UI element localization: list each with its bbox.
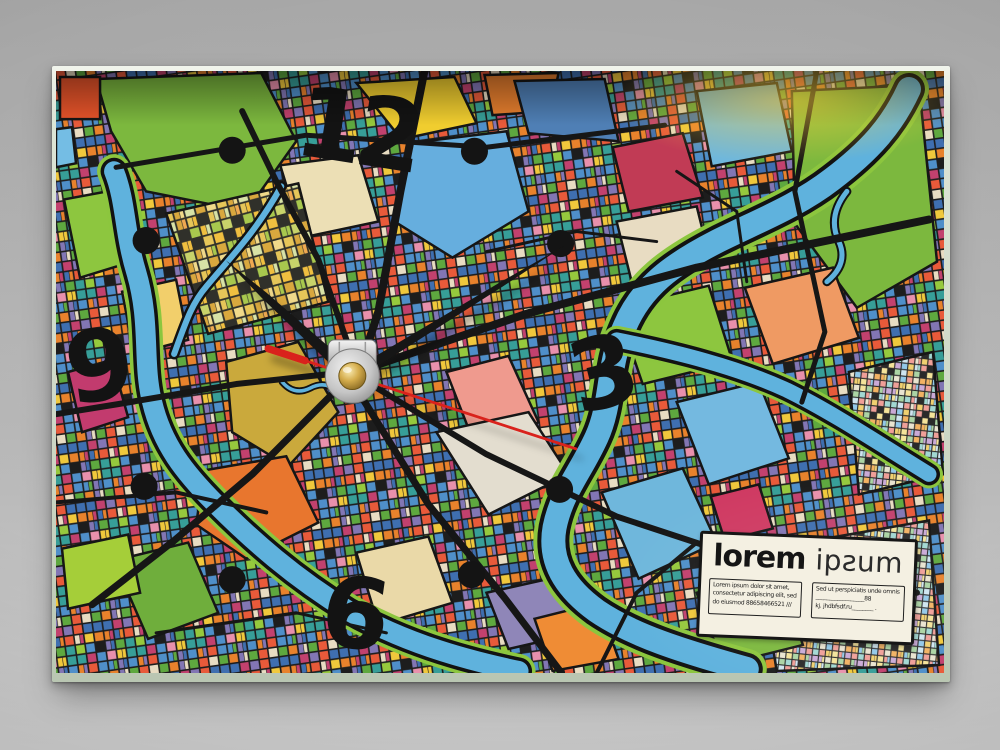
photo-backdrop: 12 3 6 9 [0,0,1000,750]
hub-highlight [343,367,352,373]
brand-label: lorem ipƨum Lorem ipsum dolor sit amet, … [696,531,918,646]
clock-face: 12 3 6 9 [56,71,944,673]
label-right-box: Sed ut perspiciatis unde omnis _________… [811,582,905,622]
brand-word-bold: lorem [713,538,807,577]
clock-body: 12 3 6 9 [52,66,950,682]
label-left-box: Lorem ipsum dolor sit amet, consectetur … [708,578,802,618]
clock-hub [325,340,379,403]
hub-brass-cap [339,362,366,389]
label-boxes: Lorem ipsum dolor sit amet, consectetur … [700,578,913,622]
brand-word-light: ipƨum [815,543,904,579]
brand-title: lorem ipƨum [702,538,915,581]
